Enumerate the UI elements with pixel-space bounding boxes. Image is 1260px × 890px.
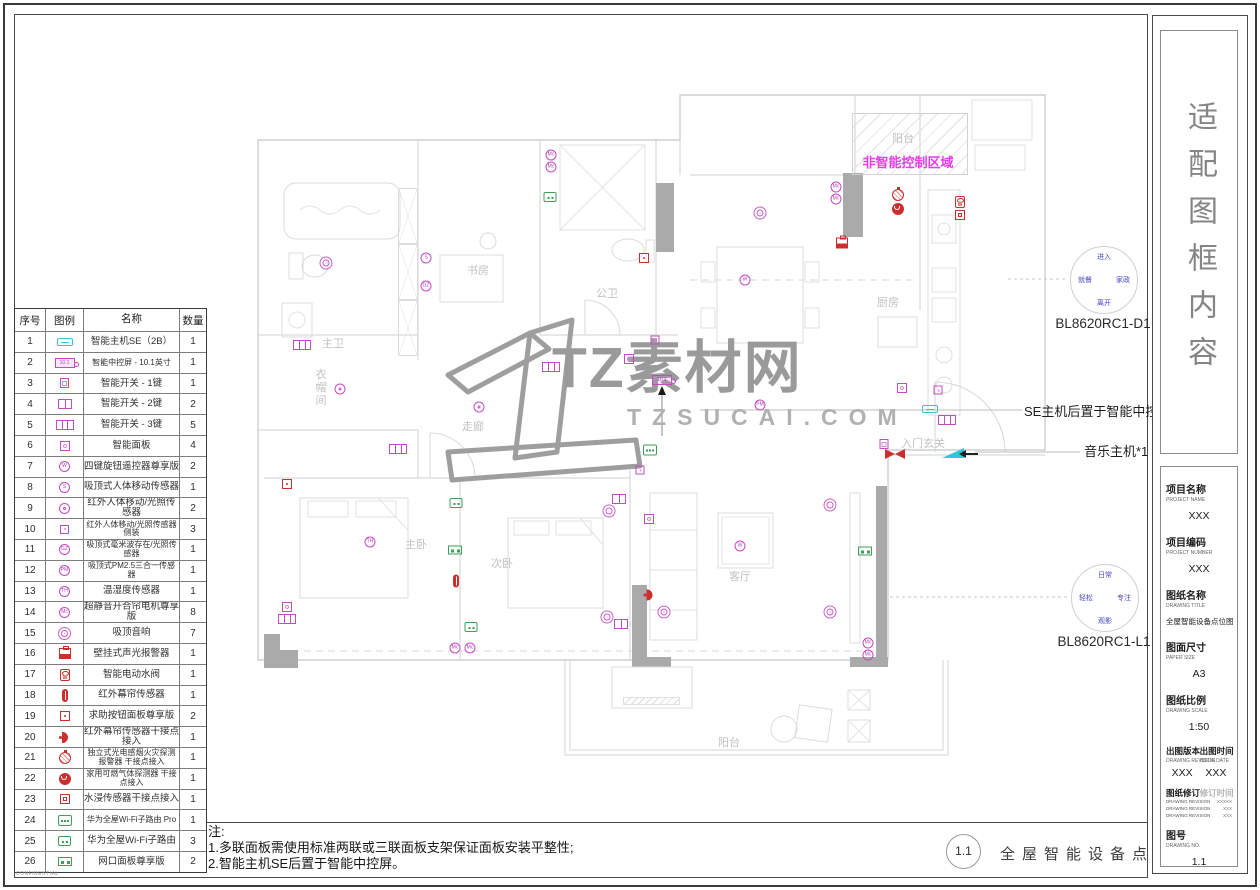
netport-icon: [448, 546, 462, 555]
irs-icon: [474, 402, 485, 413]
field-sublabel: DRAWING TITLE: [1166, 603, 1232, 609]
scene-panel-d1: 进入 就餐 家政 离开: [1070, 246, 1138, 314]
w-icon: W: [59, 461, 70, 472]
field-label: 图纸修订: [1166, 787, 1198, 799]
th-icon: TH: [365, 537, 376, 548]
legend-name-cell: 智能开关 - 3键: [83, 415, 179, 435]
curtaindry-icon: [644, 590, 655, 601]
legend-row: 26网口面板尊享版2: [15, 851, 206, 872]
field-label: 项目编码: [1166, 534, 1232, 549]
spk-icon: [658, 606, 671, 619]
s-icon: S: [59, 482, 70, 493]
legend-row: 11GZ吸顶式毫米波存在/光照传感器1: [15, 539, 206, 560]
room-label: 阳台: [718, 734, 740, 750]
field-label: 图纸名称: [1166, 587, 1232, 602]
sw3-icon: [389, 444, 407, 454]
legend-icon-cell: [45, 810, 83, 830]
field-value: 1.1: [1166, 856, 1232, 868]
legend-name-cell: 智能电动水阀: [83, 665, 179, 685]
legend-icon-cell: [45, 831, 83, 851]
legend-no-cell: 14: [15, 602, 45, 622]
legend-no-cell: 18: [15, 686, 45, 706]
room-label: 厨房: [877, 294, 899, 310]
legend-qty-cell: 1: [179, 810, 206, 830]
field-value: 全屋智能设备点位图: [1166, 616, 1232, 627]
sidebar-info-box: 项目名称 PROJECT NAME XXX 项目编码 PROJECT NUMBE…: [1160, 466, 1238, 867]
mc-icon: Mc: [863, 638, 874, 649]
legend-no-cell: 7: [15, 457, 45, 477]
legend-row: 13TH温湿度传感器1: [15, 581, 206, 602]
field-label: 图面尺寸: [1166, 639, 1232, 654]
legend-icon-cell: GZ: [45, 540, 83, 560]
legend-icon-cell: [45, 769, 83, 789]
panel-icon: [644, 514, 654, 524]
revision-row: 图纸修订 DRAWING REVISION DRAWING REVISION D…: [1166, 787, 1232, 819]
legend-qty-cell: 1: [179, 374, 206, 394]
sw3-icon: [278, 614, 296, 624]
mc-icon: Mc: [59, 607, 70, 618]
field-sublabel: PAPER SIZE: [1166, 655, 1232, 661]
revision-value: XXX: [1200, 813, 1232, 820]
legend-icon-cell: S: [45, 478, 83, 498]
legend-no-cell: 22: [15, 769, 45, 789]
legend-name-cell: 吸顶式毫米波存在/光照传感器: [83, 540, 179, 560]
issue-row: 出图版本 DRAWING REVISION XXX 出图时间 ISSUE DAT…: [1166, 745, 1232, 779]
legend-name-cell: 红外人体移动/光照传感器 侧装: [83, 519, 179, 539]
room-label: 阳台: [892, 130, 914, 146]
valve-icon: [60, 669, 70, 681]
sw1-icon: [60, 378, 69, 388]
legend-name-cell: 吸顶式PM2.5三合一传感器: [83, 561, 179, 581]
alarm-icon: [59, 648, 71, 659]
legend-qty-cell: 1: [179, 353, 206, 373]
field-label: 修订时间: [1200, 787, 1232, 799]
mc-icon: Mc: [546, 162, 557, 173]
room-label: 走廊: [462, 418, 484, 434]
legend-row: 12PM吸顶式PM2.5三合一传感器1: [15, 560, 206, 581]
legend-icon-cell: [45, 748, 83, 768]
legend-header-row: 序号图例名称数量: [15, 309, 206, 331]
legend-row: 14Mc超静音开合帘电机尊享版8: [15, 601, 206, 622]
room-label: 客厅: [729, 568, 751, 584]
title-block-sidebar: 适配图框内容 项目名称 PROJECT NAME XXX 项目编码 PROJEC…: [1152, 15, 1248, 874]
sw3-icon: [938, 415, 956, 425]
legend-header-cell: 名称: [83, 309, 179, 331]
legend-icon-cell: [45, 727, 83, 747]
room-label: 公卫: [596, 285, 618, 301]
valve-icon: [955, 196, 965, 208]
legend-no-cell: 11: [15, 540, 45, 560]
legend-qty-cell: 1: [179, 561, 206, 581]
legend-header-cell: 序号: [15, 309, 45, 331]
legend-row: 22家用可燃气体探测器 干接点接入1: [15, 768, 206, 789]
spk-icon: [824, 606, 837, 619]
legend-icon-cell: PM: [45, 561, 83, 581]
gas-icon: [892, 203, 904, 215]
legend-icon-cell: [45, 644, 83, 664]
legend-name-cell: 智能主机SE（2B）: [83, 332, 179, 352]
scene-label: 观影: [1098, 616, 1112, 626]
field-value: XXX: [1200, 767, 1232, 779]
watermark-brand: TZ素材网: [552, 322, 803, 404]
wardrobe-cell: [398, 188, 418, 244]
legend-qty-cell: 1: [179, 727, 206, 747]
field-sublabel: DRAWING REVISION: [1166, 758, 1198, 764]
legend-no-cell: 12: [15, 561, 45, 581]
field-sublabel: PROJECT NUMBER: [1166, 550, 1232, 556]
legend-name-cell: 壁挂式声光报警器: [83, 644, 179, 664]
pm-icon: PM: [59, 565, 70, 576]
legend-icon-cell: W: [45, 457, 83, 477]
water-icon: [955, 210, 965, 220]
legend-table: 序号图例名称数量1智能主机SE（2B）1210.1智能中控屏 - 10.1英寸1…: [14, 308, 207, 873]
room-label: 入门玄关: [901, 435, 945, 451]
legend-name-cell: 水浸传感器干接点接入: [83, 790, 179, 810]
help-icon: [282, 479, 292, 489]
sw2-icon: [58, 399, 72, 409]
mc-icon: Mc: [465, 643, 476, 654]
scene-label: 专注: [1117, 593, 1131, 603]
redtri-icon: [885, 449, 905, 459]
legend-qty-cell: 1: [179, 644, 206, 664]
legend-row: 3智能开关 - 1键1: [15, 373, 206, 394]
irside-icon: [60, 525, 69, 534]
sidebar-caption-box: 适配图框内容: [1160, 30, 1238, 454]
legend-icon-cell: [45, 623, 83, 643]
irs-icon: [335, 384, 346, 395]
netport-icon: [858, 547, 872, 556]
legend-row: 6智能面板4: [15, 435, 206, 456]
legend-name-cell: 网口面板尊享版: [83, 852, 179, 872]
legend-row: 23水浸传感器干接点接入1: [15, 789, 206, 810]
wifi-icon: [465, 622, 478, 632]
panel-icon: [624, 354, 634, 364]
w-icon: W: [735, 541, 746, 552]
revision-value: XXX: [1200, 806, 1232, 813]
legend-qty-cell: 1: [179, 769, 206, 789]
legend-name-cell: 红外幕帘传感器: [83, 686, 179, 706]
sw1-icon: [880, 439, 889, 449]
legend-icon-cell: [45, 436, 83, 456]
legend-row: 10红外人体移动/光照传感器 侧装3: [15, 518, 206, 539]
spk-icon: [601, 611, 614, 624]
legend-qty-cell: 2: [179, 498, 206, 518]
smoke-icon: [892, 189, 904, 201]
legend-qty-cell: 1: [179, 478, 206, 498]
field-value: 1:50: [1166, 721, 1232, 733]
legend-row: 16壁挂式声光报警器1: [15, 643, 206, 664]
legend-qty-cell: 1: [179, 686, 206, 706]
sw2-icon: [614, 619, 628, 629]
spk-icon: [754, 207, 767, 220]
legend-row: 17智能电动水阀1: [15, 664, 206, 685]
legend-row: 7W四键旋钮遥控器尊享版2: [15, 456, 206, 477]
music-host-note: 音乐主机*1: [1084, 441, 1148, 460]
wardrobe-cell: [398, 300, 418, 356]
legend-no-cell: 16: [15, 644, 45, 664]
legend-row: 24华为全屋Wi-Fi子路由 Pro1: [15, 809, 206, 830]
legend-qty-cell: 1: [179, 665, 206, 685]
irside-icon: [934, 386, 943, 395]
legend-row: 9红外人体移动/光照传感器2: [15, 497, 206, 518]
field-sublabel: PROJECT NAME: [1166, 497, 1232, 503]
legend-no-cell: 24: [15, 810, 45, 830]
legend-row: 4智能开关 - 2键2: [15, 393, 206, 414]
legend-icon-cell: [45, 498, 83, 518]
legend-name-cell: 智能开关 - 1键: [83, 374, 179, 394]
field-value: XXX: [1166, 563, 1232, 575]
field-label: 图纸比例: [1166, 692, 1232, 707]
smoke-icon: [59, 752, 71, 764]
legend-row: 18红外幕帘传感器1: [15, 685, 206, 706]
legend-no-cell: 6: [15, 436, 45, 456]
panel-icon: [897, 383, 907, 393]
legend-qty-cell: 2: [179, 457, 206, 477]
scene-panel-l1: 日常 轻松 专注 观影: [1071, 564, 1139, 632]
scr-icon: 10.1: [55, 358, 75, 368]
legend-name-cell: 智能开关 - 2键: [83, 394, 179, 414]
host-icon: [57, 338, 73, 346]
legend-qty-cell: 3: [179, 831, 206, 851]
legend-no-cell: 21: [15, 748, 45, 768]
gz-icon: GZ: [421, 281, 432, 292]
legend-qty-cell: 5: [179, 415, 206, 435]
field-sublabel: ISSUE DATE: [1200, 758, 1232, 764]
scene-label: 进入: [1097, 252, 1111, 262]
legend-qty-cell: 7: [179, 623, 206, 643]
mc-icon: Mc: [546, 150, 557, 161]
pm-icon: PM: [755, 400, 766, 411]
host-icon: [922, 405, 938, 413]
scene-label: 离开: [1097, 298, 1111, 308]
legend-qty-cell: 2: [179, 706, 206, 726]
legend-name-cell: 家用可燃气体探测器 干接点接入: [83, 769, 179, 789]
notes-block: 注: 1.多联面板需使用标准两联或三联面板支架保证面板安装平整性; 2.智能主机…: [208, 824, 573, 872]
legend-no-cell: 8: [15, 478, 45, 498]
spk-icon: [824, 499, 837, 512]
scene-label: 家政: [1116, 275, 1130, 285]
legend-row: 1智能主机SE（2B）1: [15, 331, 206, 352]
s-icon: S: [421, 253, 432, 264]
legend-no-cell: 9: [15, 498, 45, 518]
legend-icon-cell: [45, 332, 83, 352]
legend-qty-cell: 1: [179, 332, 206, 352]
w-icon: W: [740, 275, 751, 286]
legend-name-cell: 红外幕帘传感器干接点接入: [83, 727, 179, 747]
room-label: 主卫: [322, 335, 344, 351]
mc-icon: Mc: [450, 643, 461, 654]
legend-no-cell: 23: [15, 790, 45, 810]
legend-no-cell: 10: [15, 519, 45, 539]
legend-icon-cell: 10.1: [45, 353, 83, 373]
room-label: 主卧: [405, 536, 427, 552]
revision-value: XXXXX: [1200, 799, 1232, 806]
figure-number-bubble: 1.1: [946, 834, 981, 869]
legend-icon-cell: [45, 374, 83, 394]
drawing-sheet: 主卫衣帽间书房公卫走廊厨房入门玄关客厅主卧次卧阳台阳台 McMcMcMcMcMc…: [0, 0, 1260, 890]
help-icon: [60, 711, 70, 721]
mc-icon: Mc: [863, 650, 874, 661]
legend-row: 5智能开关 - 3键5: [15, 414, 206, 435]
legend-name-cell: 智能面板: [83, 436, 179, 456]
legend-no-cell: 1: [15, 332, 45, 352]
wifipro-icon: [643, 445, 657, 456]
scene-label: 就餐: [1078, 275, 1092, 285]
room-label: 次卧: [491, 555, 513, 571]
legend-name-cell: 红外人体移动/光照传感器: [83, 498, 179, 518]
note-line: 1.多联面板需使用标准两联或三联面板支架保证面板安装平整性;: [208, 840, 573, 856]
scene-label: 日常: [1098, 570, 1112, 580]
legend-row: 15吸顶音响7: [15, 622, 206, 643]
field-value: XXX: [1166, 510, 1232, 522]
room-label: 衣帽间: [312, 369, 328, 408]
legend-no-cell: 4: [15, 394, 45, 414]
revision-line: DRAWING REVISION: [1166, 799, 1198, 806]
irside-icon: [636, 466, 645, 475]
legend-no-cell: 17: [15, 665, 45, 685]
legend-name-cell: 华为全屋Wi-Fi子路由: [83, 831, 179, 851]
legend-no-cell: 15: [15, 623, 45, 643]
sw3-icon: [56, 420, 74, 430]
legend-header-cell: 数量: [179, 309, 206, 331]
help-icon: [639, 253, 649, 263]
legend-qty-cell: 3: [179, 519, 206, 539]
th-icon: TH: [59, 586, 70, 597]
irside-icon: [651, 336, 660, 345]
gz-icon: GZ: [59, 544, 70, 555]
legend-name-cell: 温湿度传感器: [83, 582, 179, 602]
revision-line: DRAWING REVISION: [1166, 813, 1198, 820]
legend-name-cell: 吸顶式人体移动传感器: [83, 478, 179, 498]
field-value: A3: [1166, 668, 1232, 680]
legend-qty-cell: 1: [179, 540, 206, 560]
legend-icon-cell: [45, 519, 83, 539]
sidebar-vertical-title: 适配图框内容: [1184, 101, 1214, 383]
legend-name-cell: 超静音开合帘电机尊享版: [83, 602, 179, 622]
legend-row: 210.1智能中控屏 - 10.1英寸1: [15, 352, 206, 373]
watermark-domain: TZSUCAI.COM: [627, 404, 908, 431]
legend-no-cell: 13: [15, 582, 45, 602]
spk-icon: [603, 505, 616, 518]
legend-name-cell: 华为全屋Wi-Fi子路由 Pro: [83, 810, 179, 830]
legend-qty-cell: 8: [179, 602, 206, 622]
netport-icon: [58, 857, 72, 866]
legend-no-cell: 19: [15, 706, 45, 726]
legend-qty-cell: 1: [179, 582, 206, 602]
legend-name-cell: 四键旋钮遥控器尊享版: [83, 457, 179, 477]
field-label: 图号: [1166, 827, 1232, 842]
legend-row: 21独立式光电感烟火灾探测报警器 干接点接入1: [15, 747, 206, 768]
panel-icon: [282, 602, 292, 612]
sw2-icon: [612, 494, 626, 504]
legend-name-cell: 独立式光电感烟火灾探测报警器 干接点接入: [83, 748, 179, 768]
legend-icon-cell: [45, 394, 83, 414]
room-label: 书房: [467, 262, 489, 278]
mc-icon: Mc: [831, 194, 842, 205]
se-host-note: SE主机后置于智能中控屏: [1024, 401, 1171, 420]
scr-icon: 10.1: [652, 375, 672, 385]
legend-no-cell: 26: [15, 852, 45, 872]
legend-icon-cell: [45, 852, 83, 872]
alarm-icon: [836, 238, 848, 249]
legend-header-cell: 图例: [45, 309, 83, 331]
legend-icon-cell: [45, 665, 83, 685]
legend-no-cell: 25: [15, 831, 45, 851]
curtain-icon: [453, 575, 459, 588]
legend-qty-cell: 4: [179, 436, 206, 456]
legend-qty-cell: 2: [179, 852, 206, 872]
wifipro-icon: [58, 815, 72, 826]
field-label: 项目名称: [1166, 481, 1232, 496]
field-label: 出图版本: [1166, 745, 1198, 757]
legend-name-cell: 吸顶音响: [83, 623, 179, 643]
curtain-icon: [62, 689, 68, 702]
legend-name-cell: 求助按钮面板尊享版: [83, 706, 179, 726]
legend-icon-cell: [45, 790, 83, 810]
sw3-icon: [542, 362, 560, 372]
legend-icon-cell: [45, 686, 83, 706]
legend-row: 20红外幕帘传感器干接点接入1: [15, 726, 206, 747]
legend-icon-cell: [45, 706, 83, 726]
field-value: XXX: [1166, 767, 1198, 779]
legend-row: 8S吸顶式人体移动传感器1: [15, 477, 206, 498]
legend-qty-cell: 1: [179, 748, 206, 768]
notes-title: 注:: [208, 824, 573, 840]
legend-no-cell: 3: [15, 374, 45, 394]
legend-row: 19求助按钮面板尊享版2: [15, 705, 206, 726]
wifi-icon: [544, 192, 557, 202]
wifi-icon: [58, 836, 71, 846]
blkarrow-icon: [966, 453, 978, 455]
mc-icon: Mc: [831, 182, 842, 193]
wardrobe-cell: [398, 244, 418, 300]
non-smart-zone-label: 非智能控制区域: [843, 152, 973, 171]
sw3-icon: [293, 340, 311, 350]
revision-line: DRAWING REVISION: [1166, 806, 1198, 813]
field-label: 出图时间: [1200, 745, 1232, 757]
confidential-label: CONFIDENTIAL: [16, 871, 59, 877]
irs-icon: [59, 503, 70, 514]
curtaindry-icon: [59, 732, 70, 743]
spk-icon: [58, 627, 71, 640]
legend-no-cell: 20: [15, 727, 45, 747]
field-sublabel: DRAWING SCALE: [1166, 708, 1232, 714]
gas-icon: [59, 773, 71, 785]
field-sublabel: DRAWING NO.: [1166, 843, 1232, 849]
legend-no-cell: 5: [15, 415, 45, 435]
legend-icon-cell: [45, 415, 83, 435]
note-line: 2.智能主机SE后置于智能中控屏。: [208, 856, 573, 872]
wifi-icon: [450, 498, 463, 508]
spk-icon: [320, 257, 333, 270]
water-icon: [60, 794, 70, 804]
scene-label: 轻松: [1079, 593, 1093, 603]
legend-name-cell: 智能中控屏 - 10.1英寸: [83, 353, 179, 373]
legend-icon-cell: Mc: [45, 602, 83, 622]
legend-icon-cell: TH: [45, 582, 83, 602]
panel-icon: [60, 441, 70, 451]
legend-qty-cell: 1: [179, 790, 206, 810]
legend-qty-cell: 2: [179, 394, 206, 414]
legend-row: 25华为全屋Wi-Fi子路由3: [15, 830, 206, 851]
legend-no-cell: 2: [15, 353, 45, 373]
washer-hatch-strip: [623, 697, 680, 705]
